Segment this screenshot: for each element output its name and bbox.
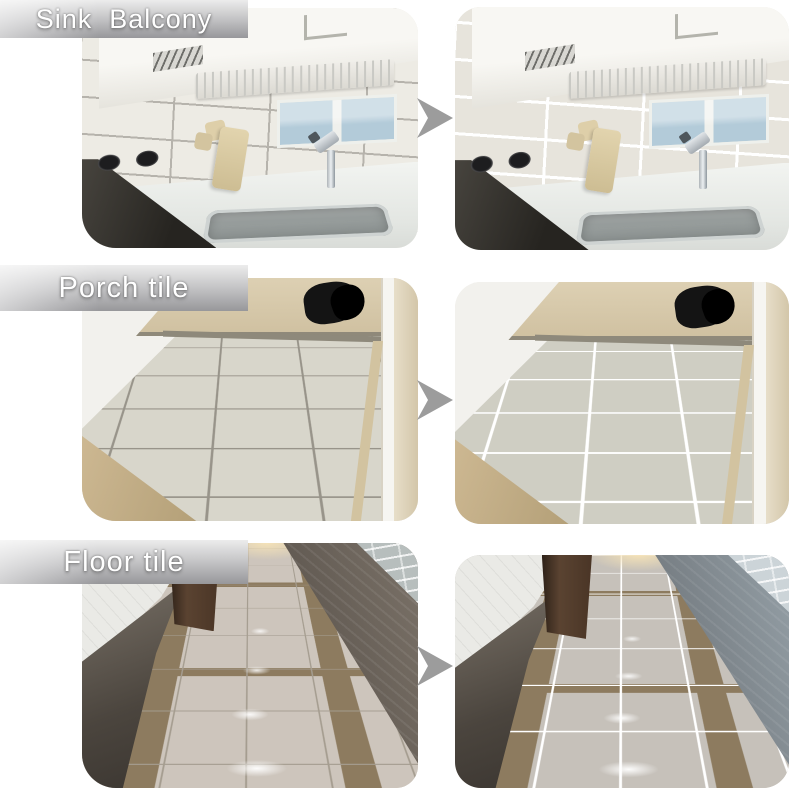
metal-bracket (675, 10, 718, 39)
section-label: Porch tile (59, 272, 190, 305)
cup (566, 132, 585, 152)
product-comparison-collage: Sink Balcony (0, 0, 800, 800)
after-photo-hallway (455, 555, 789, 788)
cup (193, 131, 212, 150)
comparison-row-sink-balcony: Sink Balcony (0, 0, 800, 262)
section-label: Sink Balcony (36, 4, 213, 35)
door-frame (383, 278, 395, 521)
section-label: Floor tile (63, 546, 184, 579)
right-arrow-icon (417, 380, 453, 420)
section-label-banner: Porch tile (0, 265, 248, 311)
after-photo-kitchen (455, 7, 789, 250)
section-label-banner: Floor tile (0, 540, 248, 584)
comparison-row-floor-tile: Floor tile (0, 530, 800, 800)
right-arrow-icon (417, 98, 453, 138)
faucet (699, 150, 707, 189)
comparison-row-porch-tile: Porch tile (0, 262, 800, 530)
faucet (327, 150, 335, 188)
before-photo-porch (82, 278, 418, 521)
before-photo-kitchen (82, 8, 418, 248)
wood-door (542, 555, 592, 639)
door-frame (394, 278, 418, 521)
after-photo-porch (455, 282, 789, 524)
section-label-banner: Sink Balcony (0, 0, 248, 38)
right-arrow-icon (417, 646, 453, 686)
door-frame (766, 282, 789, 524)
door-frame (754, 282, 766, 524)
metal-bracket (304, 11, 347, 40)
